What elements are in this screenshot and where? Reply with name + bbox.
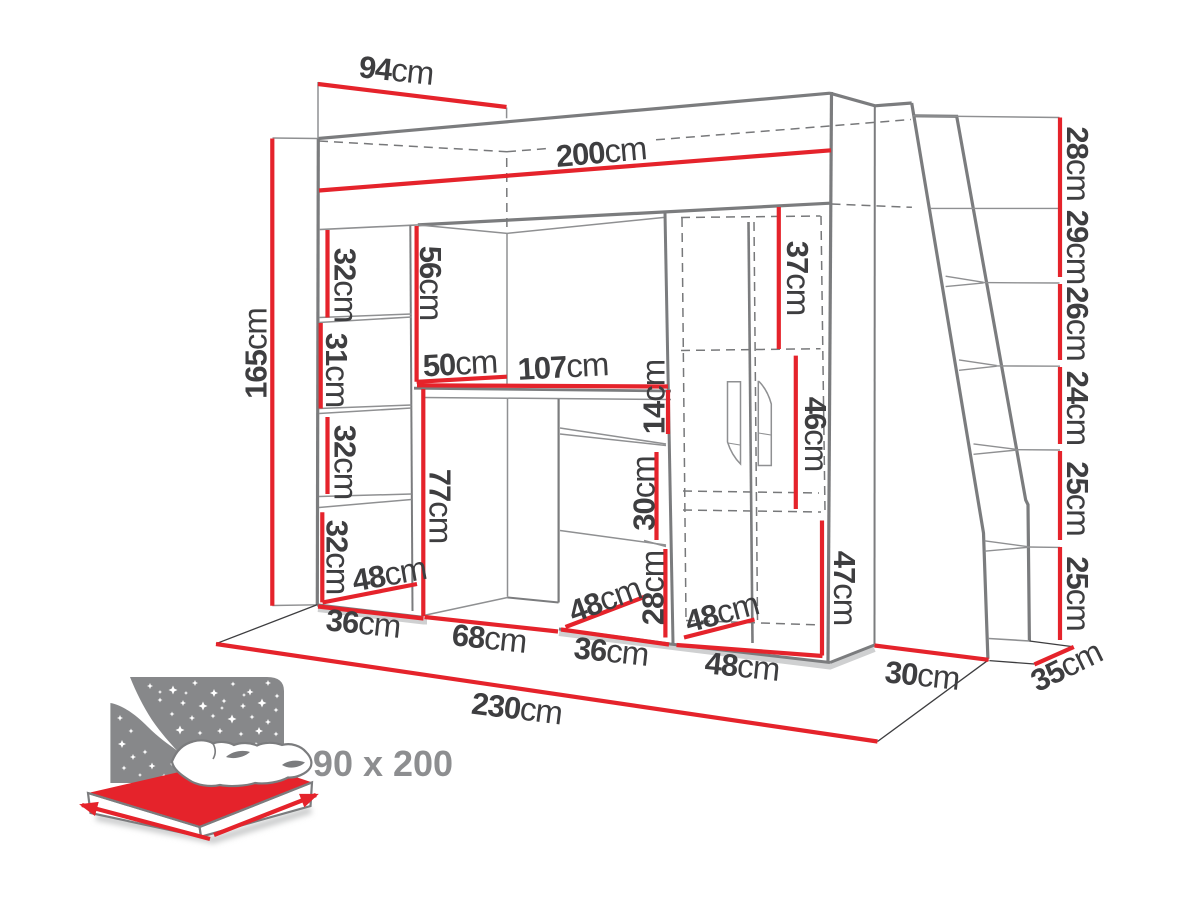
svg-text:94cm: 94cm [357, 47, 435, 92]
svg-text:32cm: 32cm [328, 425, 365, 499]
svg-text:90 x 200: 90 x 200 [313, 743, 453, 784]
svg-text:26cm: 26cm [1060, 286, 1097, 360]
svg-text:36cm: 36cm [324, 600, 402, 645]
svg-text:56cm: 56cm [413, 246, 450, 320]
svg-text:14cm: 14cm [635, 360, 672, 434]
svg-text:47cm: 47cm [827, 551, 864, 625]
svg-text:30cm: 30cm [883, 652, 961, 697]
svg-text:29cm: 29cm [1060, 210, 1097, 284]
svg-text:32cm: 32cm [320, 520, 357, 594]
svg-text:30cm: 30cm [625, 456, 662, 530]
svg-text:50cm: 50cm [422, 343, 498, 384]
svg-text:25cm: 25cm [1060, 556, 1097, 630]
svg-text:36cm: 36cm [572, 628, 650, 673]
svg-text:37cm: 37cm [780, 241, 817, 315]
svg-text:46cm: 46cm [798, 397, 835, 471]
svg-text:77cm: 77cm [423, 469, 460, 543]
svg-text:32cm: 32cm [328, 248, 365, 322]
svg-text:107cm: 107cm [517, 345, 610, 387]
svg-text:25cm: 25cm [1060, 461, 1097, 535]
svg-text:48cm: 48cm [703, 643, 781, 688]
svg-text:31cm: 31cm [319, 333, 356, 407]
svg-text:68cm: 68cm [450, 615, 528, 660]
svg-text:28cm: 28cm [1060, 126, 1097, 200]
svg-text:24cm: 24cm [1060, 371, 1097, 445]
svg-text:165cm: 165cm [237, 308, 274, 399]
